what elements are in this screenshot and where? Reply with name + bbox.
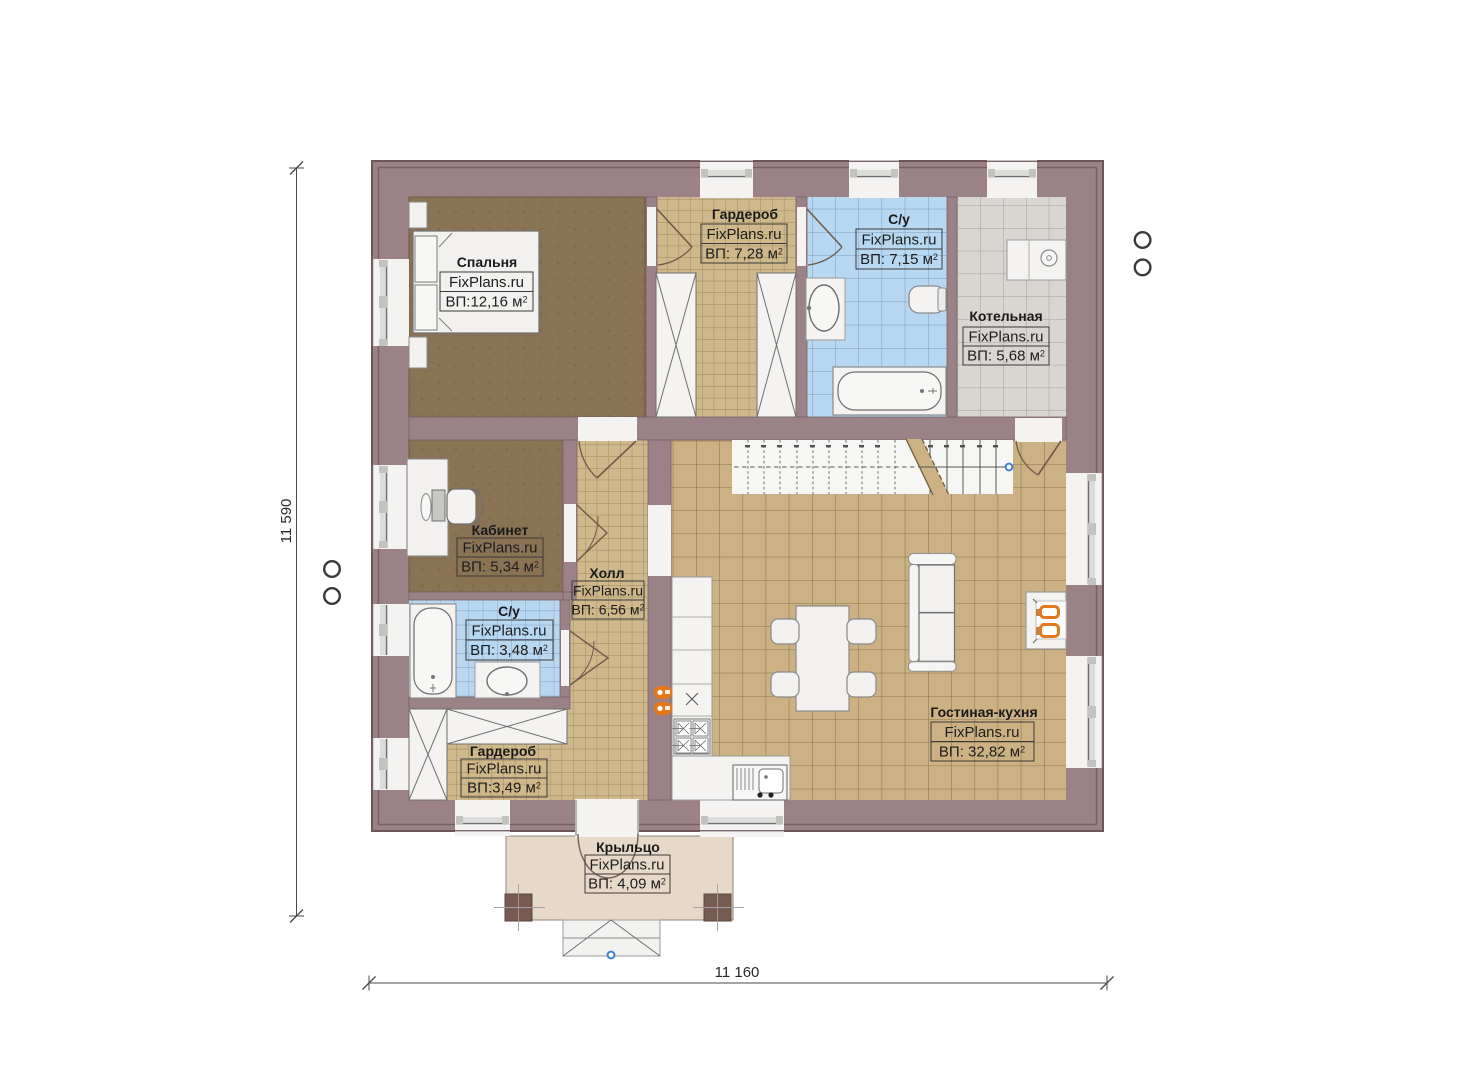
svg-text:ВП: 7,28 м2: ВП: 7,28 м2: [705, 246, 783, 263]
svg-text:Котельная: Котельная: [969, 308, 1042, 324]
svg-text:ВП: 4,09 м2: ВП: 4,09 м2: [588, 876, 666, 893]
svg-text:Крыльцо: Крыльцо: [596, 839, 660, 855]
svg-text:ВП: 5,34 м2: ВП: 5,34 м2: [461, 559, 539, 576]
svg-text:11 590: 11 590: [278, 499, 295, 544]
svg-text:FixPlans.ru: FixPlans.ru: [706, 226, 781, 243]
svg-text:С/у: С/у: [888, 211, 910, 227]
svg-text:Спальня: Спальня: [457, 254, 517, 270]
svg-text:Гардероб: Гардероб: [470, 743, 537, 759]
svg-text:ВП: 5,68 м2: ВП: 5,68 м2: [967, 348, 1045, 365]
svg-text:FixPlans.ru: FixPlans.ru: [968, 329, 1043, 346]
svg-text:Гардероб: Гардероб: [712, 206, 779, 222]
svg-text:ВП: 6,56 м2: ВП: 6,56 м2: [572, 602, 645, 618]
svg-text:FixPlans.ru: FixPlans.ru: [449, 274, 524, 291]
svg-text:FixPlans.ru: FixPlans.ru: [944, 724, 1019, 741]
svg-text:ВП: 32,82 м2: ВП: 32,82 м2: [939, 744, 1025, 761]
svg-text:Кабинет: Кабинет: [472, 522, 529, 538]
svg-text:FixPlans.ru: FixPlans.ru: [462, 540, 537, 557]
svg-text:FixPlans.ru: FixPlans.ru: [861, 232, 936, 249]
svg-text:11 160: 11 160: [715, 964, 760, 981]
svg-text:ВП:12,16 м2: ВП:12,16 м2: [446, 294, 528, 311]
svg-text:ВП: 3,48 м2: ВП: 3,48 м2: [470, 642, 548, 659]
svg-text:FixPlans.ru: FixPlans.ru: [589, 857, 664, 874]
svg-text:FixPlans.ru: FixPlans.ru: [466, 761, 541, 778]
svg-text:ВП:3,49 м2: ВП:3,49 м2: [467, 780, 541, 797]
svg-text:Холл: Холл: [589, 565, 624, 581]
svg-text:Гостиная-кухня: Гостиная-кухня: [930, 704, 1037, 720]
svg-text:FixPlans.ru: FixPlans.ru: [471, 623, 546, 640]
svg-text:ВП: 7,15 м2: ВП: 7,15 м2: [860, 251, 938, 268]
svg-text:FixPlans.ru: FixPlans.ru: [573, 583, 643, 599]
svg-text:С/у: С/у: [498, 603, 520, 619]
